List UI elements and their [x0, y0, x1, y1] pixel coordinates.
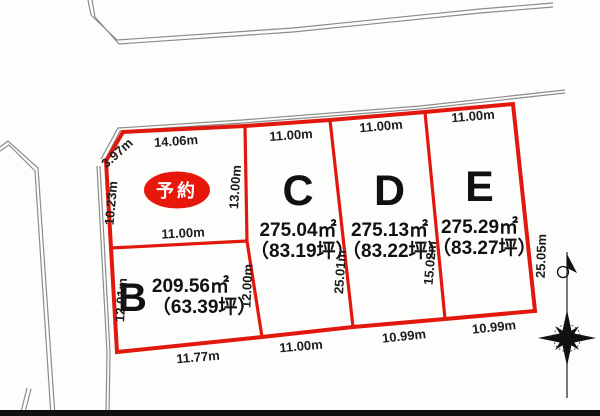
lot-d-letter: D: [342, 170, 437, 213]
dimension-label: 12.01m: [112, 277, 130, 322]
lot-c-tsubo: （83.19坪）: [250, 242, 346, 263]
lot-c-info: C 275.04㎡ （83.19坪）: [250, 170, 346, 262]
dimension-label: 11.00m: [161, 224, 205, 241]
dimension-label: 14.06m: [153, 132, 198, 150]
lot-e-area: 275.29㎡: [432, 218, 527, 239]
lot-c-letter: C: [250, 170, 346, 213]
lot-e-letter: E: [432, 166, 527, 209]
boundary-lot-a-b: [111, 241, 247, 248]
lot-c-area: 275.04㎡: [250, 221, 346, 242]
dimension-label: 13.00m: [226, 164, 244, 209]
lot-e-tsubo: （83.27坪）: [432, 239, 527, 260]
dimension-label: 12.00m: [238, 264, 255, 309]
lot-d-area: 275.13㎡: [342, 221, 437, 242]
dimension-label: 25.05m: [533, 234, 550, 279]
lot-b-info: B 209.56㎡ （63.39坪）: [118, 277, 256, 318]
dimension-label: 11.00m: [269, 126, 313, 144]
dimension-label: 25.01m: [331, 249, 349, 294]
lot-a-reserved-label: 予約: [156, 177, 198, 203]
site-plan-canvas: 予約 B 209.56㎡ （63.39坪） C 275.04㎡ （83.19坪）…: [0, 0, 600, 416]
image-bottom-border: [0, 410, 600, 416]
lot-e-info: E 275.29㎡ （83.27坪）: [432, 166, 527, 259]
